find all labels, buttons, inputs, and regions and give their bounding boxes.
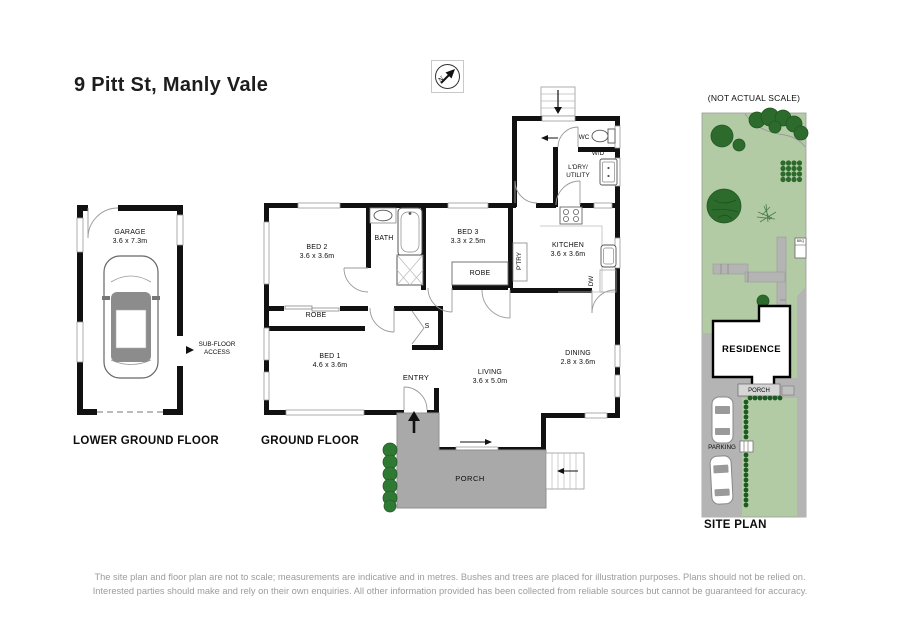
cooktop-icon — [560, 207, 582, 224]
porch-deck — [397, 413, 546, 508]
disclaimer-line2: Interested parties should make and rely … — [70, 585, 830, 599]
bed2-dims: 3.6 x 3.6m — [277, 252, 357, 261]
bed2-label: BED 2 3.6 x 3.6m — [277, 243, 357, 261]
wc-label: WC — [574, 134, 594, 142]
site-plan-graphics — [702, 108, 808, 517]
subfloor-line1: SUB-FLOOR — [193, 341, 241, 349]
robe-slider-panel — [285, 306, 312, 309]
living-label: LIVING 3.6 x 5.0m — [450, 368, 530, 386]
toilet-icon — [592, 129, 615, 143]
page-title: 9 Pitt St, Manly Vale — [74, 74, 268, 97]
living-name: LIVING — [450, 368, 530, 377]
bed1-dims: 4.6 x 3.6m — [290, 361, 370, 370]
scale-note: (NOT ACTUAL SCALE) — [698, 93, 810, 103]
dining-dims: 2.8 x 3.6m — [538, 358, 618, 367]
subfloor-access-label: SUB-FLOOR ACCESS — [193, 341, 241, 357]
compass: N — [431, 60, 464, 93]
site-right-strip — [797, 287, 806, 517]
disclaimer: The site plan and floor plan are not to … — [70, 571, 830, 598]
shower-icon — [397, 255, 423, 285]
laundry-line1: L'DRY/ — [553, 164, 603, 172]
site-car — [712, 397, 733, 443]
parking-label: PARKING — [702, 444, 742, 452]
bed3-name: BED 3 — [428, 228, 508, 237]
compass-letter: N — [435, 74, 446, 85]
laundry-label: L'DRY/ UTILITY — [553, 164, 603, 180]
subfloor-line2: ACCESS — [193, 349, 241, 357]
dining-label: DINING 2.8 x 3.6m — [538, 349, 618, 367]
slide-arrow-annex — [541, 135, 558, 141]
dishwasher-label: DW — [588, 269, 596, 293]
bed1-label: BED 1 4.6 x 3.6m — [290, 352, 370, 370]
garage-dims: 3.6 x 7.3m — [100, 237, 160, 246]
bbq-label: BBQ — [795, 239, 806, 243]
basin-icon — [370, 208, 396, 223]
garage-name: GARAGE — [100, 228, 160, 237]
ground-floor-plan — [264, 87, 620, 512]
pantry-label: P'TRY — [516, 247, 524, 275]
site-car — [710, 455, 733, 504]
garage-car — [102, 256, 160, 378]
robe-hall-label: ROBE — [286, 311, 346, 320]
storage-label: S — [420, 322, 434, 331]
stairs-top — [541, 87, 575, 116]
bed3-dims: 3.3 x 2.5m — [428, 237, 508, 246]
kitchen-label: KITCHEN 3.6 x 3.6m — [528, 241, 608, 259]
bed3-label: BED 3 3.3 x 2.5m — [428, 228, 508, 246]
laundry-line2: UTILITY — [553, 172, 603, 180]
dining-name: DINING — [538, 349, 618, 358]
bed2-name: BED 2 — [277, 243, 357, 252]
disclaimer-line1: The site plan and floor plan are not to … — [70, 571, 830, 585]
porch-label: PORCH — [430, 474, 510, 483]
living-dims: 3.6 x 5.0m — [450, 377, 530, 386]
residence-label: RESIDENCE — [713, 344, 790, 355]
entry-label: ENTRY — [395, 373, 437, 382]
kitchen-name: KITCHEN — [528, 241, 608, 250]
kitchen-dims: 3.6 x 3.6m — [528, 250, 608, 259]
ground-floor-title: GROUND FLOOR — [261, 435, 359, 447]
bed1-name: BED 1 — [290, 352, 370, 361]
porch-bushes — [383, 443, 397, 512]
floorplan-page: 9 Pitt St, Manly Vale N (NOT ACTUAL SCAL… — [0, 0, 900, 636]
bathtub-icon — [398, 208, 422, 256]
porch-stairs — [546, 453, 584, 489]
wd-label: W/D — [586, 150, 610, 158]
site-plan-title: SITE PLAN — [704, 519, 767, 531]
bath-label: BATH — [366, 234, 402, 243]
robe-bed3-label: ROBE — [452, 269, 508, 278]
lower-ground-floor-title: LOWER GROUND FLOOR — [73, 435, 219, 447]
site-porch-label: PORCH — [738, 387, 780, 395]
site-porch-step — [782, 386, 794, 395]
compass-icon: N — [432, 61, 463, 92]
garage-label: GARAGE 3.6 x 7.3m — [100, 228, 160, 246]
slider-arrow — [460, 439, 492, 445]
